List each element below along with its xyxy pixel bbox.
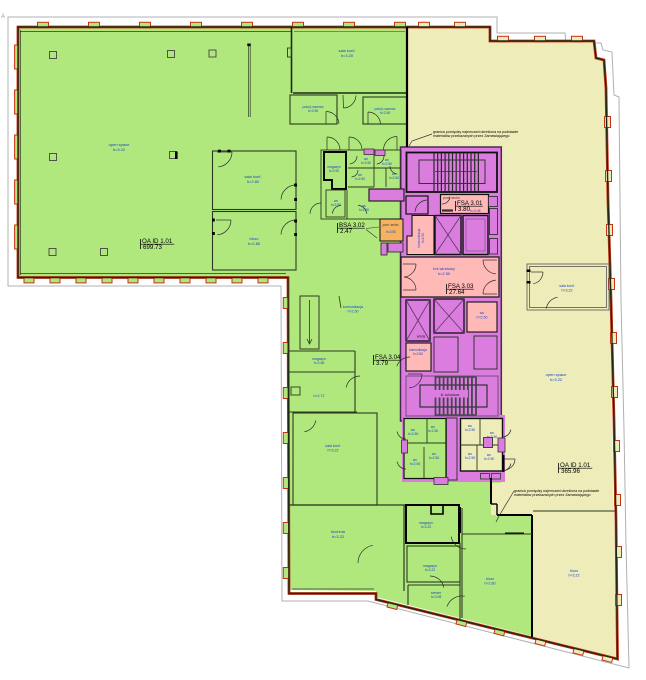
svg-text:magazynh=3.22: magazynh=3.22 <box>423 564 437 572</box>
svg-text:pom. techn.: pom. techn. <box>383 223 400 227</box>
svg-text:magazynh=3.22: magazynh=3.22 <box>419 521 433 529</box>
svg-text:3.80: 3.80 <box>458 206 471 213</box>
svg-text:2.47: 2.47 <box>340 228 353 235</box>
svg-text:sala konf.h=3.22: sala konf.h=3.22 <box>559 284 574 292</box>
svg-text:sala konf.h=2.80: sala konf.h=2.80 <box>244 174 261 184</box>
svg-text:A: A <box>1 14 5 20</box>
svg-text:699.73: 699.73 <box>143 244 162 251</box>
svg-text:kuchniah=3.22: kuchniah=3.22 <box>331 529 346 539</box>
svg-text:materiałów przekazanych przez: materiałów przekazanych przez Zamawiając… <box>433 134 510 138</box>
svg-text:materiałów przekazanych przez: materiałów przekazanych przez Zamawiając… <box>514 493 591 497</box>
svg-text:27.64: 27.64 <box>449 289 465 296</box>
svg-text:h=3.45: h=3.45 <box>470 209 481 213</box>
svg-text:winda: winda <box>417 335 426 339</box>
svg-text:kl. schodowa: kl. schodowa <box>441 393 460 397</box>
svg-text:biuroh=3.22: biuroh=3.22 <box>568 569 579 577</box>
svg-text:h=2.72: h=2.72 <box>313 394 324 398</box>
svg-text:sala konf.h=3.22: sala konf.h=3.22 <box>325 444 340 452</box>
svg-text:serwerh=3.08: serwerh=3.08 <box>431 591 442 599</box>
svg-text:3.79: 3.79 <box>376 360 389 367</box>
svg-text:magazynh=2.50: magazynh=2.50 <box>327 165 341 173</box>
svg-text:sala konf.h=3.20: sala konf.h=3.20 <box>338 48 355 58</box>
svg-text:biuroh=2.80: biuroh=2.80 <box>484 577 495 585</box>
svg-text:h=2.50: h=2.50 <box>386 230 396 234</box>
svg-text:magazynh=2.56: magazynh=2.56 <box>312 357 326 365</box>
svg-text:365.96: 365.96 <box>561 468 580 475</box>
